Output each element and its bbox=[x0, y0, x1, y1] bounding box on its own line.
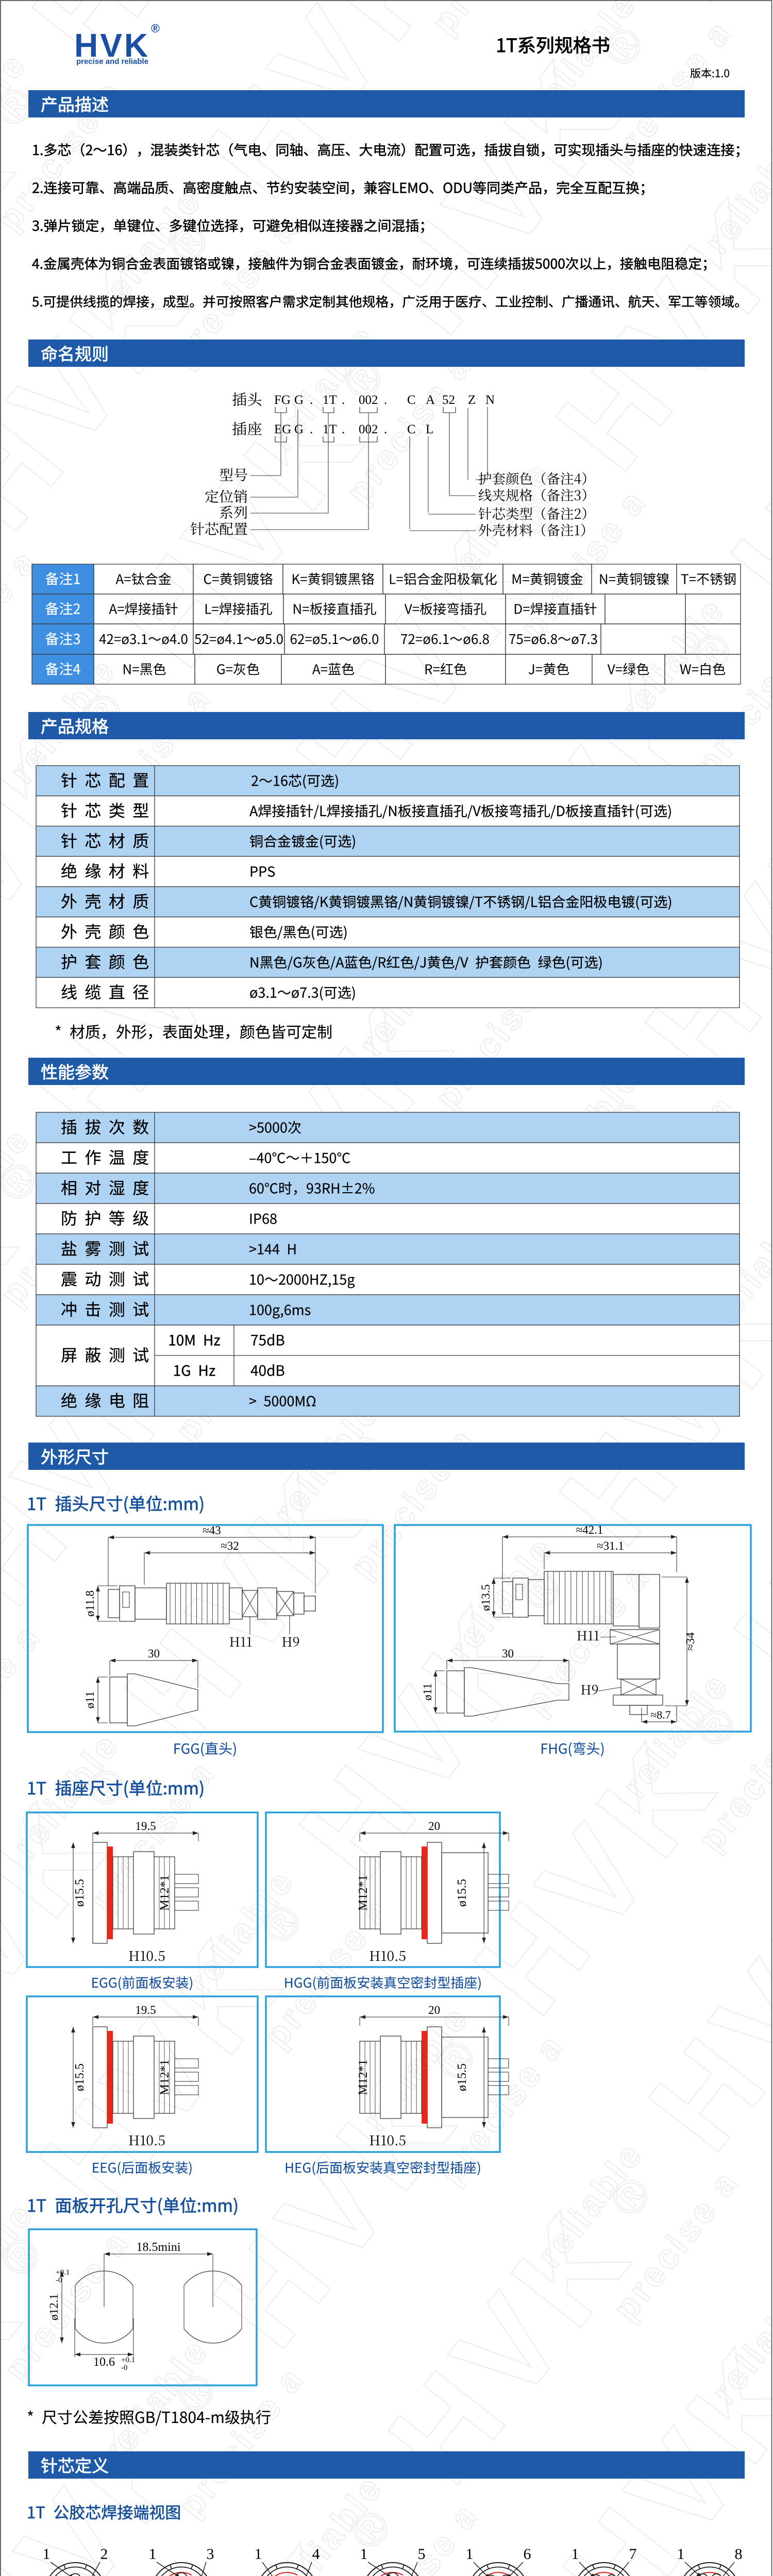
svg-text:ø15.5: ø15.5 bbox=[73, 1879, 87, 1907]
svg-text:ø13.5: ø13.5 bbox=[479, 1584, 492, 1611]
svg-text:.: . bbox=[342, 393, 345, 407]
svg-text:FG: FG bbox=[274, 393, 291, 407]
svg-text:8: 8 bbox=[735, 2546, 743, 2563]
svg-text:≈8.7: ≈8.7 bbox=[650, 1708, 671, 1721]
svg-text:1: 1 bbox=[255, 2546, 262, 2563]
svg-text:20: 20 bbox=[428, 1820, 440, 1833]
svg-text:+0.1: +0.1 bbox=[56, 2268, 70, 2277]
svg-text:.: . bbox=[384, 393, 387, 407]
svg-text:L: L bbox=[426, 422, 433, 436]
svg-text:≈34: ≈34 bbox=[684, 1632, 697, 1651]
svg-text:7: 7 bbox=[629, 2546, 637, 2563]
svg-text:ø11.8: ø11.8 bbox=[83, 1590, 96, 1617]
svg-text:19.5: 19.5 bbox=[135, 2004, 156, 2016]
svg-text:A: A bbox=[426, 393, 435, 407]
svg-text:002: 002 bbox=[359, 393, 378, 407]
svg-text:≈31.1: ≈31.1 bbox=[597, 1539, 624, 1552]
svg-text:G: G bbox=[294, 422, 304, 436]
svg-text:≈43: ≈43 bbox=[203, 1524, 221, 1537]
svg-text:-0: -0 bbox=[121, 2364, 128, 2372]
svg-text:ø15.5: ø15.5 bbox=[73, 2063, 87, 2091]
svg-text:≈42.1: ≈42.1 bbox=[576, 1523, 603, 1536]
svg-text:M12*1: M12*1 bbox=[158, 2059, 172, 2095]
svg-text:-0: -0 bbox=[56, 2276, 62, 2284]
svg-text:3: 3 bbox=[207, 2546, 214, 2563]
svg-text:M12*1: M12*1 bbox=[357, 2059, 370, 2095]
svg-text:ø12.1: ø12.1 bbox=[47, 2294, 60, 2320]
svg-text:N: N bbox=[485, 393, 495, 407]
svg-text:.: . bbox=[384, 422, 387, 436]
svg-text:1: 1 bbox=[149, 2546, 157, 2563]
svg-text:18.5mini: 18.5mini bbox=[136, 2241, 180, 2254]
svg-text:precise and reliable: precise and reliable bbox=[76, 57, 148, 66]
svg-text:30: 30 bbox=[148, 1647, 160, 1660]
svg-text:2: 2 bbox=[100, 2546, 108, 2563]
svg-text:ø15.5: ø15.5 bbox=[456, 1879, 469, 1907]
svg-text:.: . bbox=[342, 422, 345, 436]
svg-text:.: . bbox=[310, 393, 313, 407]
svg-text:+0.1: +0.1 bbox=[121, 2356, 135, 2364]
svg-text:ø11: ø11 bbox=[83, 1691, 96, 1709]
svg-text:5: 5 bbox=[418, 2546, 426, 2563]
svg-text:≈32: ≈32 bbox=[221, 1539, 239, 1552]
svg-text:G: G bbox=[294, 393, 304, 407]
svg-text:10.6: 10.6 bbox=[93, 2355, 115, 2369]
svg-text:1: 1 bbox=[43, 2546, 51, 2563]
svg-text:1: 1 bbox=[466, 2546, 474, 2563]
svg-text:1T: 1T bbox=[323, 393, 337, 407]
svg-text:EG: EG bbox=[274, 422, 291, 436]
svg-text:20: 20 bbox=[428, 2004, 440, 2016]
svg-text:M12*1: M12*1 bbox=[158, 1875, 172, 1910]
svg-text:®: ® bbox=[151, 22, 160, 35]
svg-text:C: C bbox=[407, 422, 416, 436]
svg-text:Z: Z bbox=[468, 393, 476, 407]
svg-text:1: 1 bbox=[360, 2546, 368, 2563]
svg-text:1: 1 bbox=[572, 2546, 579, 2563]
svg-text:6: 6 bbox=[524, 2546, 531, 2563]
svg-text:1T: 1T bbox=[323, 422, 337, 436]
svg-text:4: 4 bbox=[312, 2546, 320, 2563]
svg-text:M12*1: M12*1 bbox=[357, 1875, 370, 1910]
svg-text:19.5: 19.5 bbox=[135, 1820, 156, 1833]
svg-text:.: . bbox=[310, 422, 313, 436]
svg-text:52: 52 bbox=[442, 393, 455, 407]
svg-text:ø15.5: ø15.5 bbox=[456, 2063, 469, 2091]
svg-text:C: C bbox=[407, 393, 416, 407]
svg-text:1: 1 bbox=[677, 2546, 685, 2563]
svg-text:ø11: ø11 bbox=[421, 1683, 434, 1701]
svg-text:30: 30 bbox=[502, 1647, 514, 1660]
